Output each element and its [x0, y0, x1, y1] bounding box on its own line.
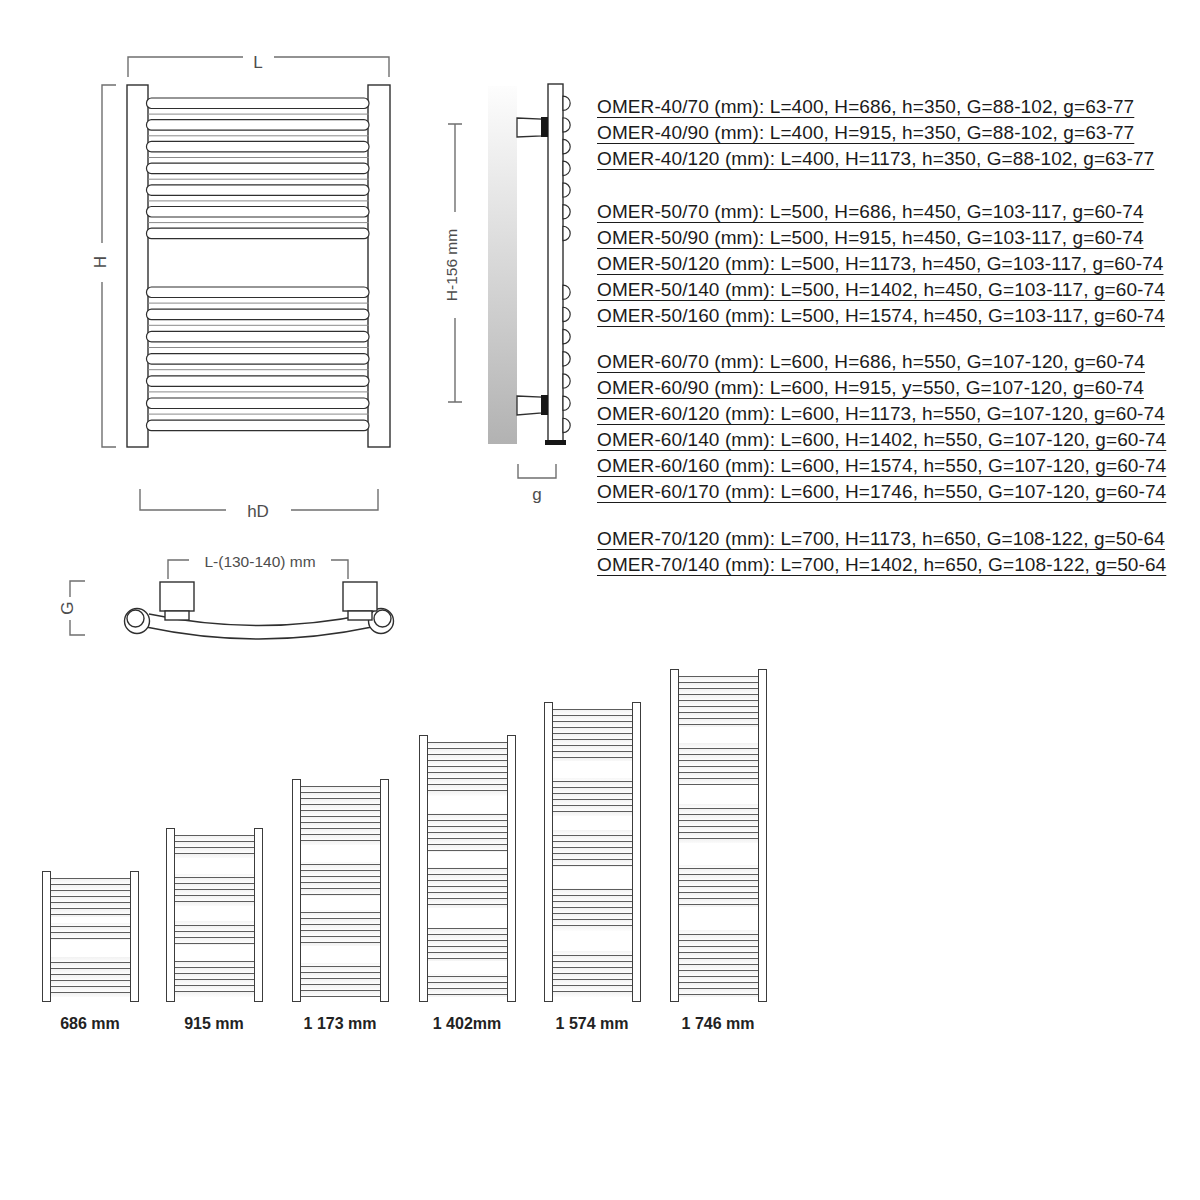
mini-towel-gap [51, 940, 130, 957]
dim-line-g [518, 464, 556, 478]
spec-row-OMER-50/160: OMER-50/160 (mm): L=500, H=1574, h=450, … [597, 305, 1165, 327]
front-view: L H hD [91, 53, 390, 521]
side-view: H-156 mm g [443, 84, 570, 504]
spec-row-OMER-60/70: OMER-60/70 (mm): L=600, H=686, h=550, G=… [597, 351, 1145, 373]
side-top-bracket [517, 118, 542, 137]
mini-rungs [553, 709, 632, 997]
dim-label-g: g [532, 485, 541, 504]
height-label-1402: 1 402mm [397, 1015, 537, 1033]
top-left-endcap-inner [127, 610, 144, 627]
top-right-mount-clamp [348, 611, 372, 620]
side-bottom-bracket-block [541, 395, 548, 415]
dim-label-mount-spacing: L-(130-140) mm [204, 553, 315, 570]
spec-row-OMER-60/140: OMER-60/140 (mm): L=600, H=1402, h=550, … [597, 429, 1166, 451]
front-right-post [368, 85, 390, 447]
top-view: L-(130-140) mm G [58, 553, 394, 639]
mini-radiator-1574 [544, 702, 641, 1002]
mini-towel-gap [679, 727, 758, 743]
front-left-post [127, 85, 148, 447]
spec-row-OMER-60/90: OMER-60/90 (mm): L=600, H=915, y=550, G=… [597, 377, 1144, 399]
mini-towel-gap [553, 931, 632, 951]
mini-towel-gap [175, 858, 254, 874]
mini-left-post [166, 828, 175, 1002]
spec-row-OMER-70/120: OMER-70/120 (mm): L=700, H=1173, h=650, … [597, 528, 1165, 550]
mini-right-post [507, 735, 516, 1002]
mini-radiator-1173 [292, 779, 389, 1002]
mini-towel-gap [428, 908, 507, 928]
mini-right-post [130, 871, 139, 1002]
mini-towel-gap [301, 845, 380, 862]
top-tube-lower-arc [146, 627, 372, 639]
mini-towel-gap [553, 816, 632, 830]
mini-left-post [292, 779, 301, 1002]
spec-row-OMER-40/120: OMER-40/120 (mm): L=400, H=1173, h=350, … [597, 148, 1154, 170]
mini-towel-gap [553, 761, 632, 778]
spec-row-OMER-50/140: OMER-50/140 (mm): L=500, H=1402, h=450, … [597, 279, 1165, 301]
mini-radiator-1746 [670, 669, 767, 1002]
mini-left-post [419, 735, 428, 1002]
mini-towel-gap [301, 946, 380, 963]
height-label-915: 915 mm [144, 1015, 284, 1033]
mini-towel-gap [679, 843, 758, 865]
spec-row-OMER-40/70: OMER-40/70 (mm): L=400, H=686, h=350, G=… [597, 96, 1134, 118]
mini-rungs [175, 835, 254, 997]
spec-row-OMER-60/160: OMER-60/160 (mm): L=600, H=1574, h=550, … [597, 455, 1166, 477]
side-top-bracket-block [541, 117, 548, 137]
mini-rungs [51, 878, 130, 997]
mini-left-post [670, 669, 679, 1002]
mini-right-post [380, 779, 389, 1002]
mini-towel-gap [175, 945, 254, 961]
mini-towel-gap [553, 867, 632, 887]
mini-right-post [758, 669, 767, 1002]
spec-row-OMER-50/120: OMER-50/120 (mm): L=500, H=1173, h=450, … [597, 253, 1163, 275]
dim-label-H156: H-156 mm [443, 229, 460, 301]
height-label-686: 686 mm [20, 1015, 160, 1033]
spec-row-OMER-60/170: OMER-60/170 (mm): L=600, H=1746, h=550, … [597, 481, 1166, 503]
mini-towel-gap [679, 907, 758, 929]
mini-towel-gap [175, 906, 254, 921]
spec-row-OMER-40/90: OMER-40/90 (mm): L=400, H=915, h=350, G=… [597, 122, 1134, 144]
mini-rungs [679, 676, 758, 997]
height-label-1173: 1 173 mm [270, 1015, 410, 1033]
spec-row-OMER-50/90: OMER-50/90 (mm): L=500, H=915, h=450, G=… [597, 227, 1144, 249]
mini-right-post [254, 828, 263, 1002]
page: L H hD H-156 mm g L- [0, 0, 1200, 1200]
mini-right-post [632, 702, 641, 1002]
mini-left-post [42, 871, 51, 1002]
mini-radiator-686 [42, 871, 139, 1002]
mini-towel-gap [301, 896, 380, 911]
spec-row-OMER-60/120: OMER-60/120 (mm): L=600, H=1173, h=550, … [597, 403, 1165, 425]
top-right-mount [343, 582, 377, 611]
mini-towel-gap [51, 917, 130, 923]
mini-left-post [544, 702, 553, 1002]
dim-label-H: H [91, 256, 110, 268]
wall [488, 86, 517, 444]
mini-radiator-915 [166, 828, 263, 1002]
top-left-mount [160, 582, 194, 611]
height-label-1574: 1 574 mm [522, 1015, 662, 1033]
mini-rungs [301, 786, 380, 997]
side-rung-ends [563, 96, 570, 433]
mini-radiator-1402 [419, 735, 516, 1002]
top-right-endcap-inner [374, 610, 391, 627]
side-bottom-bracket [517, 396, 542, 415]
dim-label-hD: hD [247, 502, 269, 521]
mini-towel-gap [428, 852, 507, 867]
dim-label-L: L [253, 53, 262, 72]
top-left-mount-clamp [165, 611, 189, 620]
mini-towel-gap [428, 796, 507, 814]
mini-rungs [428, 742, 507, 997]
dim-label-G: G [58, 601, 77, 614]
side-collector [548, 84, 563, 443]
spec-row-OMER-50/70: OMER-50/70 (mm): L=500, H=686, h=450, G=… [597, 201, 1144, 223]
spec-row-OMER-70/140: OMER-70/140 (mm): L=700, H=1402, h=650, … [597, 554, 1166, 576]
side-collector-bottom-cap [545, 440, 566, 445]
height-label-1746: 1 746 mm [648, 1015, 788, 1033]
mini-towel-gap [679, 785, 758, 804]
front-rungs [147, 98, 370, 431]
mini-towel-gap [428, 961, 507, 974]
